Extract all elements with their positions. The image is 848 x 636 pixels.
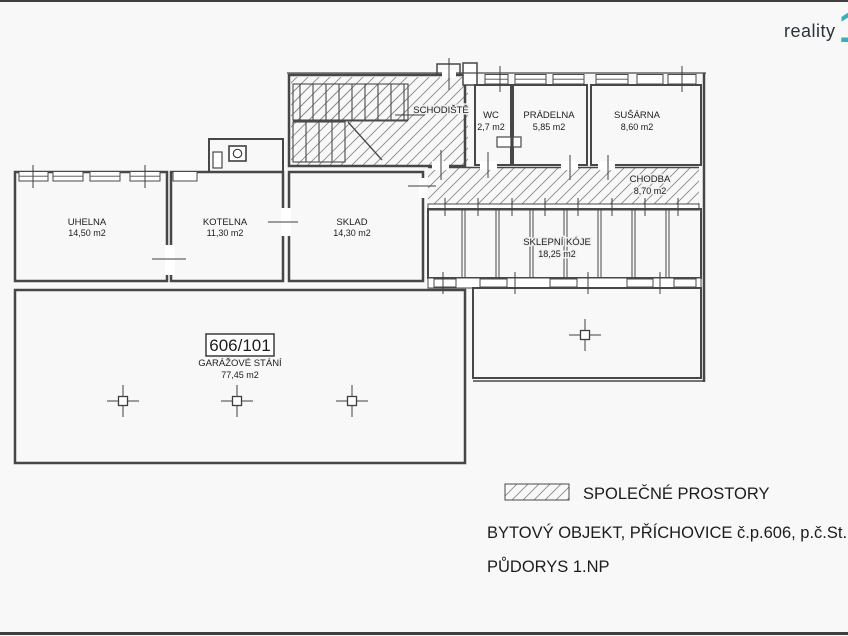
room-area-susarna: 8,60 m2 — [621, 122, 654, 132]
room-area-kotelna: 11,30 m2 — [207, 228, 244, 238]
room-area-sklad: 14,30 m2 — [333, 228, 371, 238]
room-area-chodba: 8,70 m2 — [634, 186, 667, 196]
room-area-sklepni-koje: 18,25 m2 — [538, 249, 576, 259]
room-label-sklepni-koje: SKLEPNÍ KÓJE — [523, 237, 591, 248]
chimney-icon — [229, 146, 246, 161]
room-label-chodba: CHODBA — [630, 174, 671, 185]
floor-plan: UHELNA 14,50 m2 KOTELNA 11,30 m2 SKLAD 1… — [0, 0, 848, 636]
legend-building-label: BYTOVÝ OBJEKT, PŘÍCHOVICE č.p.606, p.č.S… — [487, 523, 848, 542]
legend: SPOLEČNÉ PROSTORY BYTOVÝ OBJEKT, PŘÍCHOV… — [487, 484, 848, 576]
room-area-uhelna: 14,50 m2 — [68, 228, 106, 238]
legend-hatch-swatch — [505, 484, 569, 500]
room-label-wc: WC — [483, 110, 499, 121]
room-area-garage: 77,45 m2 — [221, 370, 259, 380]
room-label-kotelna: KOTELNA — [203, 217, 248, 228]
room-label-garage: GARÁŽOVÉ STÁNÍ — [198, 358, 282, 369]
legend-hatch-label: SPOLEČNÉ PROSTORY — [583, 484, 769, 503]
room-label-pradelna: PRÁDELNA — [523, 110, 575, 121]
garage-unit-label: 606/101 GARÁŽOVÉ STÁNÍ 77,45 m2 — [198, 334, 282, 380]
room-label-schodiste: SCHODIŠTĚ — [413, 105, 468, 116]
room-area-pradelna: 5,85 m2 — [533, 122, 566, 132]
unit-number: 606/101 — [209, 336, 270, 355]
room-label-uhelna: UHELNA — [68, 217, 107, 228]
legend-floor-label: PŮDORYS 1.NP — [487, 557, 610, 576]
room-area-wc: 2,7 m2 — [477, 122, 505, 132]
room-label-sklad: SKLAD — [336, 217, 367, 228]
column-marker-icons — [107, 319, 601, 417]
room-label-susarna: SUŠÁRNA — [614, 110, 661, 121]
